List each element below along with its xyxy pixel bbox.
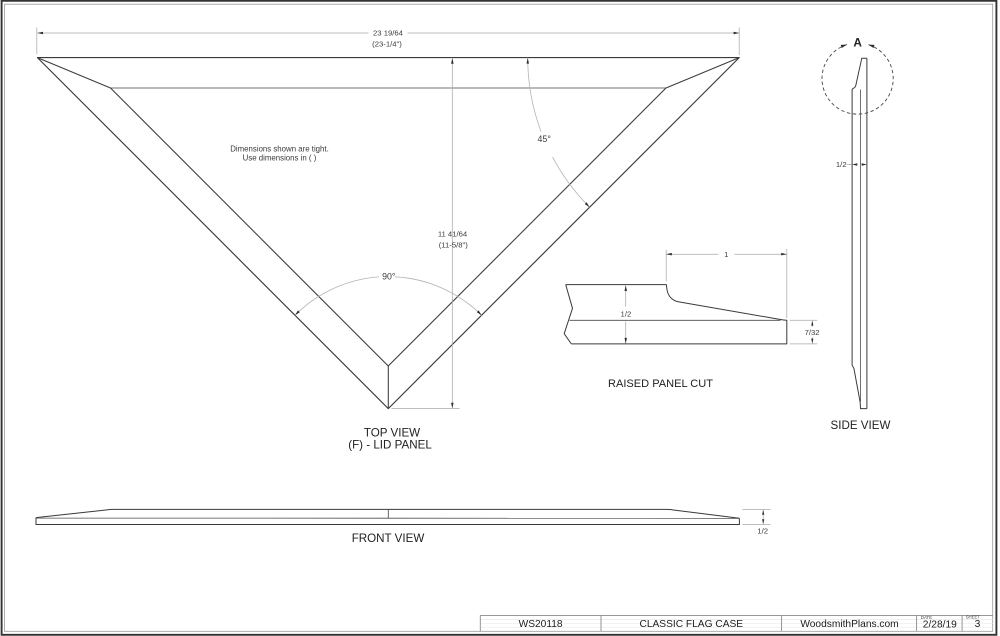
- svg-text:1: 1: [724, 250, 728, 259]
- svg-text:(23-1/4"): (23-1/4"): [372, 40, 402, 49]
- svg-text:WS20118: WS20118: [519, 619, 563, 630]
- svg-text:2/28/19: 2/28/19: [923, 619, 957, 630]
- svg-text:(11-5/8"): (11-5/8"): [439, 241, 469, 250]
- svg-text:WoodsmithPlans.com: WoodsmithPlans.com: [800, 619, 898, 630]
- svg-text:(F) - LID PANEL: (F) - LID PANEL: [348, 438, 432, 451]
- svg-text:Dimensions shown are tight.: Dimensions shown are tight.: [230, 145, 329, 154]
- svg-text:45°: 45°: [538, 134, 551, 144]
- svg-text:23 19/64: 23 19/64: [373, 28, 404, 37]
- svg-text:7/32: 7/32: [805, 328, 820, 337]
- svg-text:1/2: 1/2: [621, 310, 632, 319]
- svg-text:3: 3: [975, 619, 981, 630]
- svg-text:CLASSIC FLAG CASE: CLASSIC FLAG CASE: [639, 619, 743, 630]
- svg-text:A: A: [853, 35, 862, 49]
- svg-text:1/2: 1/2: [836, 160, 847, 169]
- svg-text:11 41/64: 11 41/64: [438, 229, 468, 238]
- svg-text:Use dimensions in ( ): Use dimensions in ( ): [243, 153, 317, 162]
- svg-text:FRONT VIEW: FRONT VIEW: [352, 532, 425, 545]
- svg-text:1/2: 1/2: [757, 527, 768, 536]
- svg-text:SIDE VIEW: SIDE VIEW: [831, 419, 891, 432]
- svg-text:90°: 90°: [382, 272, 395, 282]
- svg-text:RAISED PANEL CUT: RAISED PANEL CUT: [608, 378, 713, 390]
